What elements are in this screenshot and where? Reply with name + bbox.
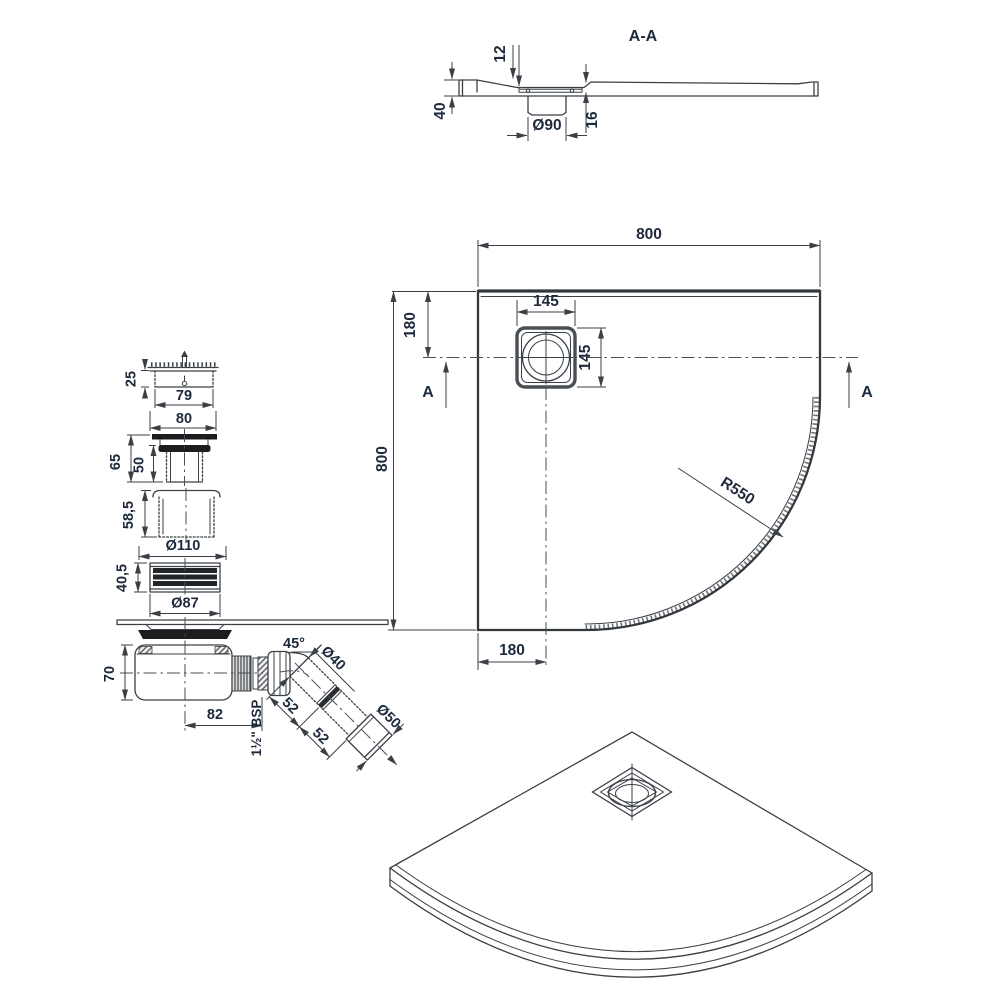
dim-seal-height: 40,5 bbox=[115, 564, 131, 592]
grate-pin-tip bbox=[181, 351, 188, 358]
dim-trap-length: 82 bbox=[207, 707, 223, 723]
dim-plan-height: 800 bbox=[374, 446, 391, 472]
section-title: A-A bbox=[629, 28, 658, 45]
dim-grate-outer: 80 bbox=[176, 411, 192, 427]
tray-board-section bbox=[117, 620, 388, 625]
dim-drain-width: 145 bbox=[533, 293, 559, 310]
section-view: A-A 40 12 Ø90 16 bbox=[432, 28, 818, 141]
dim-section-recess: 16 bbox=[584, 111, 601, 129]
iso-mid-arc bbox=[390, 880, 872, 970]
tray-arc-inner bbox=[585, 397, 813, 624]
label-thread-size: 1½" BSP bbox=[249, 700, 264, 757]
dim-upper-inner: 50 bbox=[132, 457, 148, 473]
dim-upper-height: 65 bbox=[108, 454, 124, 470]
waste-assembly: 25 79 80 65 50 58,5 Ø110 bbox=[102, 351, 424, 798]
plan-view: 800 180 800 145 145 R550 180 A A bbox=[374, 226, 873, 670]
section-left-rim bbox=[459, 80, 477, 96]
grate-key-hole bbox=[182, 381, 186, 385]
drain-crosshair bbox=[523, 332, 569, 385]
nut-ridges bbox=[274, 653, 286, 696]
grate-bar bbox=[148, 368, 218, 372]
dim-seal-dia: Ø87 bbox=[171, 596, 198, 612]
shower-tray-drawing: A-A 40 12 Ø90 16 bbox=[0, 0, 1000, 1000]
technical-drawing-page: A-A 40 12 Ø90 16 bbox=[0, 0, 1000, 1000]
dim-corner-radius: R550 bbox=[717, 474, 757, 508]
outlet-pipe-group: Ø40 52 52 Ø50 bbox=[262, 636, 423, 797]
dim-pipe-dia: Ø40 bbox=[318, 643, 349, 674]
trap-tab-right bbox=[215, 647, 228, 654]
iso-corner-edges bbox=[390, 868, 872, 891]
dim-plan-offset-bottom: 180 bbox=[499, 642, 525, 659]
dim-pipe-seg2: 52 bbox=[309, 725, 332, 748]
section-drain-flange bbox=[519, 88, 582, 93]
trap-tab-left bbox=[139, 647, 152, 654]
dim-grate-height: 25 bbox=[124, 371, 140, 387]
elbow-outer-curve bbox=[288, 653, 308, 659]
dim-elbow-angle: 45° bbox=[283, 636, 305, 652]
dim-section-drain-dia: Ø90 bbox=[532, 117, 561, 134]
dim-plan-offset-top: 180 bbox=[402, 312, 419, 338]
section-marker-right: A bbox=[861, 384, 873, 401]
perspective-view bbox=[390, 732, 872, 977]
dim-drain-height: 145 bbox=[577, 344, 594, 370]
dim-section-depth: 12 bbox=[492, 45, 509, 62]
dim-cup-height: 58,5 bbox=[121, 501, 137, 529]
iso-front-arc bbox=[390, 868, 872, 959]
iso-bottom-arc bbox=[390, 886, 872, 977]
dim-grate-inner: 79 bbox=[176, 388, 192, 404]
section-marker-left: A bbox=[422, 384, 434, 401]
dim-outlet-dia: Ø50 bbox=[373, 701, 404, 732]
compression-nut bbox=[268, 652, 290, 696]
dim-plan-width: 800 bbox=[636, 226, 662, 243]
dim-section-height: 40 bbox=[432, 102, 449, 119]
dim-pipe-seg1: 52 bbox=[279, 695, 302, 718]
section-top-surface bbox=[459, 80, 818, 96]
dim-cup-dia: Ø110 bbox=[166, 538, 201, 554]
iso-front-arc-inner bbox=[396, 865, 866, 952]
section-drain-boss bbox=[528, 96, 566, 115]
dim-trap-height: 70 bbox=[102, 666, 118, 682]
